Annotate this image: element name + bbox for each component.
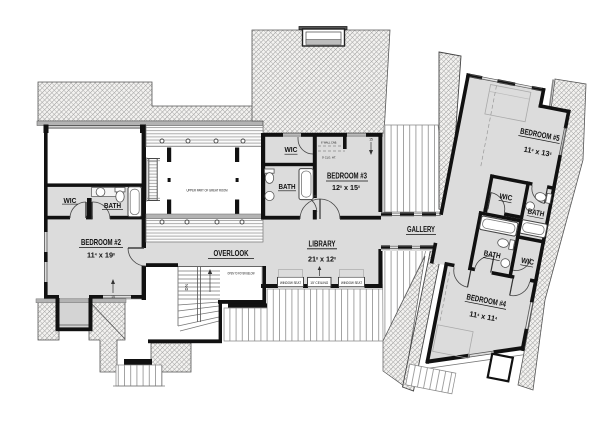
- svg-text:BEDROOM #2: BEDROOM #2: [81, 238, 121, 247]
- svg-text:UPPER PART OF GREAT ROOM: UPPER PART OF GREAT ROOM: [187, 189, 228, 193]
- svg-text:OPEN TO FOYER BELOW: OPEN TO FOYER BELOW: [228, 272, 256, 276]
- svg-text:120 x 150: 120 x 150: [332, 183, 360, 192]
- svg-text:15: 15: [369, 138, 373, 142]
- svg-text:DN: DN: [184, 283, 189, 290]
- svg-text:WIC: WIC: [64, 196, 78, 205]
- svg-text:WINDOW SEAT: WINDOW SEAT: [280, 281, 301, 285]
- svg-text:OVERLOOK: OVERLOOK: [214, 249, 249, 258]
- svg-text:GALLERY: GALLERY: [407, 225, 435, 234]
- svg-text:BATH: BATH: [279, 182, 296, 191]
- svg-text:BEDROOM #3: BEDROOM #3: [327, 172, 367, 181]
- svg-text:BATH: BATH: [104, 201, 121, 210]
- svg-text:114 x 190: 114 x 190: [87, 251, 115, 260]
- svg-text:LIBRARY: LIBRARY: [309, 240, 337, 249]
- svg-text:6' WALL CAB.: 6' WALL CAB.: [321, 141, 337, 145]
- svg-text:15' CEILING: 15' CEILING: [310, 281, 329, 285]
- svg-text:15: 15: [111, 295, 115, 299]
- svg-text:WIC: WIC: [285, 145, 299, 154]
- svg-text:218 x 120: 218 x 120: [308, 255, 336, 264]
- svg-text:WINDOW SEAT: WINDOW SEAT: [341, 281, 362, 285]
- svg-text:9' CLG. HT.: 9' CLG. HT.: [322, 156, 336, 160]
